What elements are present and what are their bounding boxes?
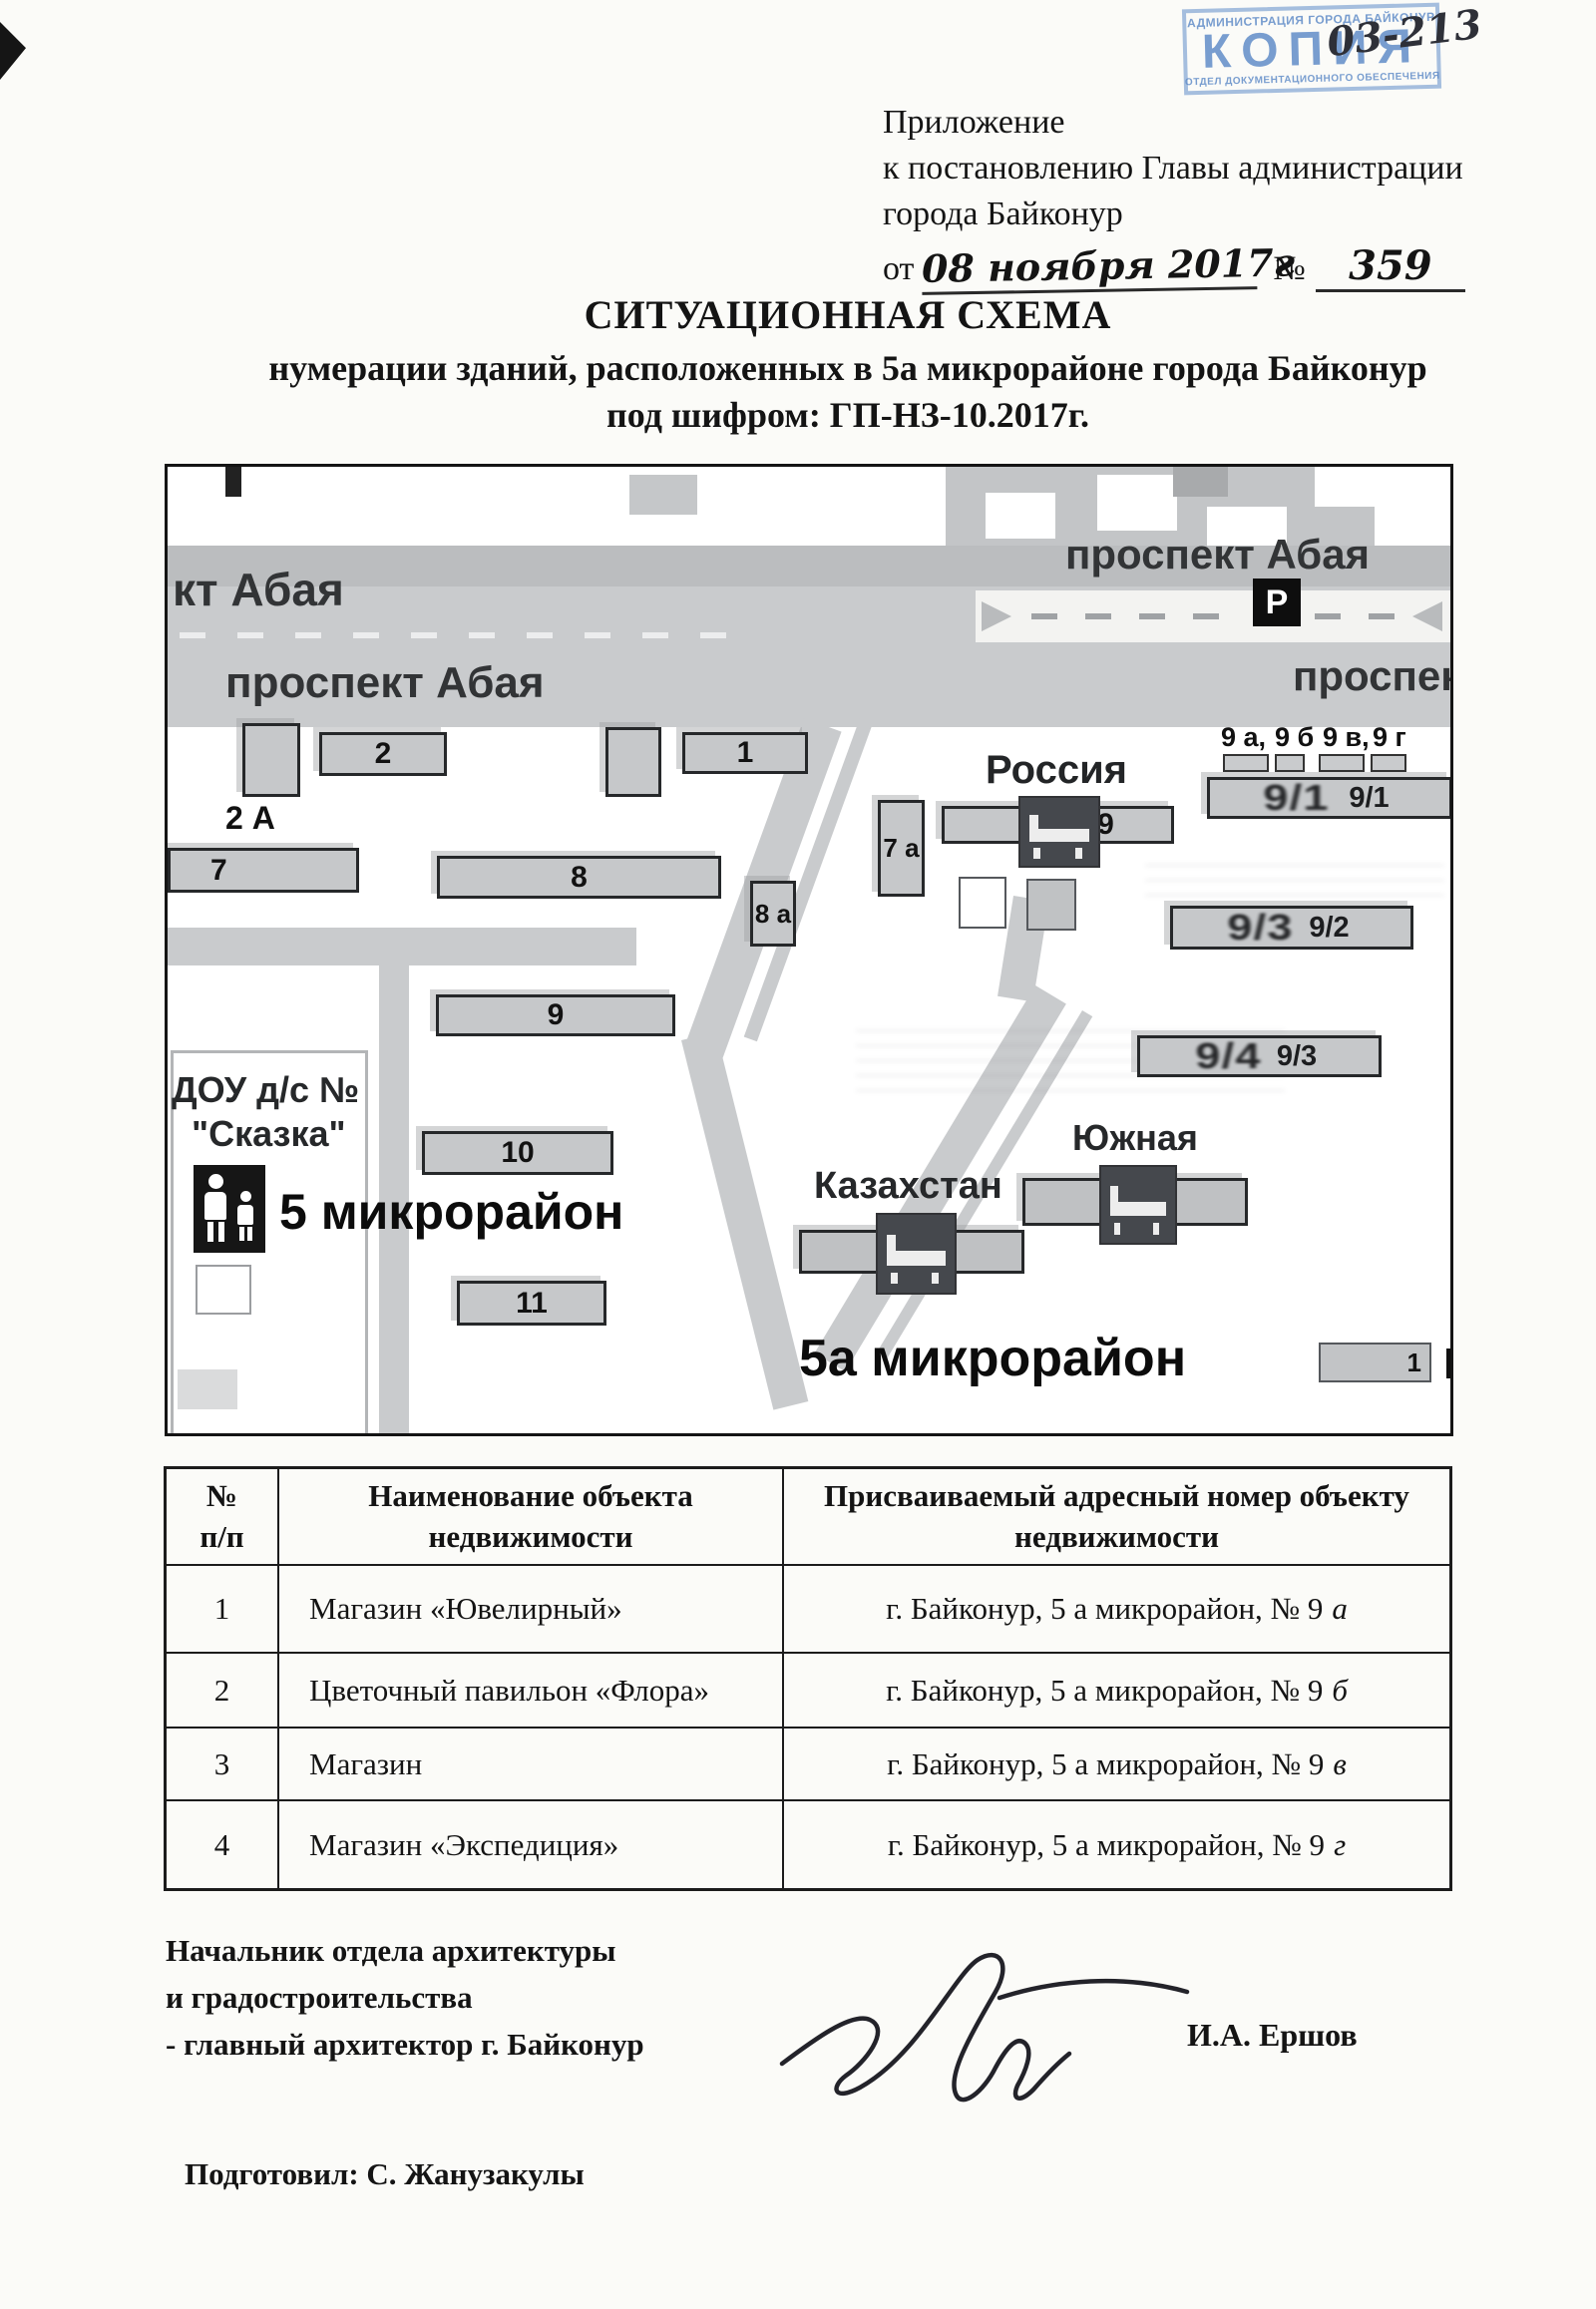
child-leg bbox=[247, 1227, 252, 1241]
district-label-5: 5 микрорайон bbox=[279, 1183, 623, 1241]
address-table: № п/п Наименование объекта недвижимости … bbox=[164, 1466, 1452, 1891]
appendix-line-2: к постановлению Главы администрации bbox=[883, 146, 1481, 192]
building-label: 10 bbox=[501, 1136, 534, 1170]
cell-num: 2 bbox=[167, 1654, 279, 1729]
building-7: 7 bbox=[168, 848, 359, 893]
building-10: 10 bbox=[422, 1131, 613, 1175]
road-arrow-right-icon bbox=[982, 601, 1011, 631]
adult-head bbox=[208, 1174, 223, 1189]
road-marking-dashes-left bbox=[180, 632, 728, 638]
cell-addr: г. Байконур, 5 а микрорайон, № 9б bbox=[784, 1654, 1449, 1729]
bed-leg bbox=[891, 1273, 898, 1285]
prepared-by: Подготовил: С. Жанузакулы bbox=[185, 2156, 585, 2192]
building-label-overprint: 9/3 bbox=[1228, 907, 1294, 949]
kiosk-label-9b: 9 б bbox=[1275, 722, 1314, 753]
situation-map: Р кт Абая проспект Абая проспект Абая пр… bbox=[165, 464, 1453, 1436]
building-9: 9 bbox=[436, 994, 675, 1036]
building-label: 7 bbox=[210, 854, 227, 888]
map-top-building-cutout bbox=[1315, 467, 1375, 507]
building-2a bbox=[242, 723, 300, 797]
scan-corner-artifact bbox=[0, 22, 26, 80]
map-top-building-dark bbox=[1173, 467, 1228, 497]
street-label-abaya-right: проспект Абая bbox=[1065, 531, 1370, 578]
building-17: 1 bbox=[1319, 1343, 1431, 1382]
bed-leg bbox=[932, 1273, 939, 1285]
building-9-1: 9/1 9/1 bbox=[1207, 777, 1452, 819]
cell-name: Магазин «Ювелирный» bbox=[279, 1566, 784, 1654]
doc-title-line3: под шифром: ГП-НЗ-10.2017г. bbox=[219, 394, 1476, 436]
adult-leg bbox=[218, 1222, 224, 1242]
number-handwritten: 359 bbox=[1316, 243, 1465, 292]
building-small-gray bbox=[1026, 879, 1076, 931]
cell-addr: г. Байконур, 5 а микрорайон, № 9г bbox=[784, 1801, 1449, 1888]
building-label: 1 bbox=[1407, 1347, 1421, 1378]
document-title: СИТУАЦИОННАЯ СХЕМА нумерации зданий, рас… bbox=[219, 291, 1476, 436]
hotel-icon-rossiya bbox=[1018, 796, 1100, 868]
building-label: 9/3 bbox=[1277, 1040, 1317, 1073]
bed-leg bbox=[1033, 848, 1040, 858]
kiosk-label-9g: 9 г bbox=[1373, 722, 1406, 753]
parking-icon: Р bbox=[1253, 578, 1301, 626]
site-structure bbox=[196, 1265, 251, 1315]
official-title: Начальник отдела архитектуры и градостро… bbox=[166, 1927, 644, 2068]
date-number-line: от 08 ноября 2017г № 359 bbox=[883, 243, 1481, 292]
table-header-name: Наименование объекта недвижимости bbox=[279, 1469, 784, 1566]
building-label: 11 bbox=[516, 1287, 548, 1321]
official-title-line3: - главный архитектор г. Байконур bbox=[166, 2021, 644, 2068]
building-label: 9/1 bbox=[1349, 782, 1389, 815]
kazakhstan-label: Казахстан bbox=[814, 1165, 1002, 1208]
addr-text: г. Байконур, 5 а микрорайон, № 9 bbox=[886, 1673, 1323, 1709]
addr-letter: а bbox=[1332, 1591, 1348, 1627]
cell-num: 4 bbox=[167, 1801, 279, 1888]
date-handwritten: 08 ноября 2017г bbox=[922, 240, 1258, 295]
building-label: 2 bbox=[375, 737, 392, 771]
hotel-icon-yuzhnaya bbox=[1099, 1165, 1177, 1245]
scan-bleedthrough bbox=[1145, 861, 1444, 897]
adult-body bbox=[204, 1192, 226, 1220]
appendix-line-3: города Байконур bbox=[883, 192, 1481, 237]
building-label: 9/2 bbox=[1309, 912, 1349, 945]
bed-mattress bbox=[1029, 829, 1088, 842]
site-structure bbox=[178, 1369, 237, 1409]
bed-leg bbox=[1153, 1223, 1160, 1234]
adult-leg bbox=[207, 1222, 213, 1242]
bed-mattress bbox=[887, 1251, 946, 1266]
building-label: 1 bbox=[737, 736, 754, 770]
addr-letter: б bbox=[1332, 1673, 1348, 1709]
map-top-building-cutout bbox=[1097, 475, 1177, 531]
cell-name: Магазин «Экспедиция» bbox=[279, 1801, 784, 1888]
street-label-abaya-left: проспект Абая bbox=[225, 658, 545, 708]
table-header-addr: Присваиваемый адресный номер объекту нед… bbox=[784, 1469, 1449, 1566]
bed-headboard bbox=[1110, 1186, 1118, 1203]
child-head bbox=[240, 1191, 251, 1202]
building-2: 2 bbox=[319, 732, 447, 776]
appendix-header: Приложение к постановлению Главы админис… bbox=[883, 100, 1481, 292]
building-label: 8 bbox=[571, 861, 588, 895]
doc-title-line1: СИТУАЦИОННАЯ СХЕМА bbox=[219, 291, 1476, 338]
kiosk-label-9v: 9 в, bbox=[1323, 722, 1370, 753]
kiosk-9b bbox=[1275, 754, 1305, 772]
cell-name: Магазин bbox=[279, 1729, 784, 1801]
building-11: 11 bbox=[457, 1281, 606, 1326]
road-diagonal-left-arm bbox=[681, 1031, 808, 1409]
map-top-building-cutout bbox=[986, 493, 1055, 539]
building-8: 8 bbox=[437, 856, 721, 899]
road-secondary-horizontal bbox=[168, 928, 636, 965]
building-label-overprint: 9/4 bbox=[1195, 1035, 1261, 1077]
date-label: от bbox=[883, 246, 914, 292]
building-8a: 8 а bbox=[750, 881, 796, 947]
signature-name: И.А. Ершов bbox=[1187, 2017, 1358, 2054]
addr-letter: в bbox=[1333, 1746, 1346, 1782]
addr-text: г. Байконур, 5 а микрорайон, № 9 bbox=[888, 1827, 1325, 1863]
building-unlabeled-1 bbox=[605, 727, 661, 797]
building-label-overprint: 9/1 bbox=[1264, 777, 1330, 819]
official-title-line1: Начальник отдела архитектуры bbox=[166, 1927, 644, 1974]
addr-text: г. Байконур, 5 а микрорайон, № 9 bbox=[886, 1591, 1323, 1627]
kiosk-9a bbox=[1223, 754, 1269, 772]
map-edge-building-stub bbox=[225, 467, 241, 497]
official-title-line2: и градостроительства bbox=[166, 1974, 644, 2021]
scanned-document-page: АДМИНИСТРАЦИЯ ГОРОДА БАЙКОНУР КОПИЯ ОТДЕ… bbox=[0, 0, 1596, 2309]
yuzhnaya-label: Южная bbox=[1072, 1117, 1198, 1159]
building-small-white bbox=[959, 877, 1006, 929]
map-top-building bbox=[629, 475, 697, 515]
bed-leg bbox=[1075, 848, 1082, 858]
map-edge-mark bbox=[1446, 1348, 1451, 1378]
kiosk-9v bbox=[1319, 754, 1365, 772]
child-leg bbox=[239, 1227, 244, 1241]
cell-addr: г. Байконур, 5 а микрорайон, № 9в bbox=[784, 1729, 1449, 1801]
bed-leg bbox=[1114, 1223, 1121, 1234]
district-label-5a: 5а микрорайон bbox=[799, 1329, 1186, 1388]
bed-mattress bbox=[1110, 1202, 1166, 1216]
cell-addr: г. Байконур, 5 а микрорайон, № 9а bbox=[784, 1566, 1449, 1654]
cell-num: 1 bbox=[167, 1566, 279, 1654]
road-arrow-left-icon bbox=[1412, 601, 1442, 631]
street-label-abaya-clipped: кт Абая bbox=[173, 563, 344, 616]
building-label: 9 bbox=[548, 998, 565, 1032]
cell-num: 3 bbox=[167, 1729, 279, 1801]
cell-name: Цветочный павильон «Флора» bbox=[279, 1654, 784, 1729]
doc-title-line2: нумерации зданий, расположенных в 5а мик… bbox=[219, 347, 1476, 389]
hotel-icon-kazakhstan bbox=[876, 1213, 957, 1295]
kindergarten-label-1: ДОУ д/с № bbox=[172, 1069, 359, 1111]
building-9-2: 9/3 9/2 bbox=[1170, 906, 1413, 950]
bed-headboard bbox=[887, 1235, 895, 1253]
building-9-3: 9/4 9/3 bbox=[1137, 1035, 1382, 1077]
appendix-line-1: Приложение bbox=[883, 100, 1481, 146]
building-label: 7 а bbox=[883, 833, 919, 864]
building-1: 1 bbox=[682, 732, 808, 774]
kindergarten-icon bbox=[194, 1165, 265, 1253]
kindergarten-label-2: "Сказка" bbox=[192, 1113, 346, 1155]
signature bbox=[768, 1940, 1207, 2129]
kiosk-label-9a: 9 а, bbox=[1221, 722, 1266, 753]
kiosk-9g bbox=[1371, 754, 1406, 772]
table-header-num: № п/п bbox=[167, 1469, 279, 1566]
child-body bbox=[237, 1205, 253, 1225]
street-label-abaya-right2: проспект А bbox=[1293, 652, 1453, 700]
addr-letter: г bbox=[1334, 1827, 1346, 1863]
rossiya-label: Россия bbox=[986, 748, 1127, 793]
building-7a: 7 а bbox=[878, 800, 925, 897]
addr-text: г. Байконур, 5 а микрорайон, № 9 bbox=[887, 1746, 1324, 1782]
building-2a-label: 2 А bbox=[225, 800, 275, 837]
building-label: 8 а bbox=[755, 899, 791, 930]
road-marking-dashes-2 bbox=[1315, 613, 1424, 619]
road-marking-dashes-1 bbox=[1031, 613, 1231, 619]
